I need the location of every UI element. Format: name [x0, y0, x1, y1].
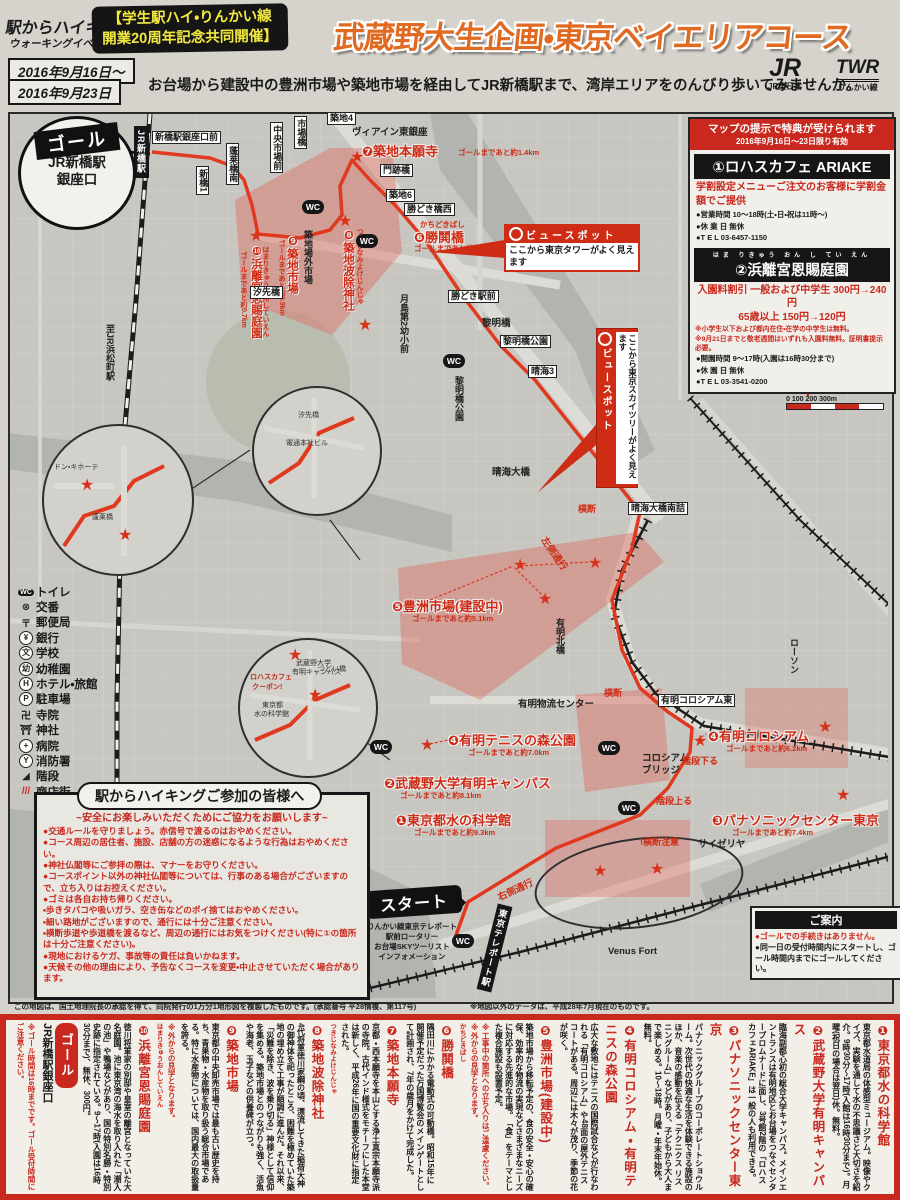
- course-subtitle: お台場から建設中の豊洲市場や築地市場を経由してJR新橋駅まで、湾岸エリアをのんび…: [148, 74, 860, 95]
- course-point-name: 東京都水の科学館: [875, 1039, 889, 1147]
- course-point-number: ❸: [726, 1023, 740, 1039]
- course-point-number: ❼: [384, 1023, 398, 1039]
- coupon-shop2-note1: ※小学生以下および都内在住・在学の中学生は無料。: [695, 326, 889, 335]
- legend-icon: +: [19, 739, 33, 753]
- goal-station-line2: 銀座口: [21, 172, 133, 189]
- legend-icon: H: [19, 677, 33, 691]
- safety-notice-panel: 駅からハイキングご参加の皆様へ ~安全にお楽しみいただくためにご協力をお願いしま…: [34, 792, 370, 1000]
- viewspot-eye-icon: [598, 332, 612, 346]
- course-point-furigana: かちどきばし: [456, 1023, 466, 1191]
- event-date-end: 2016年9月23日: [8, 79, 121, 105]
- map-legend: WCトイレ⊗交番〒郵便局¥銀行文学校幼幼稚園Hホテル・旅館P駐車場卍寺院⛩神社+…: [16, 584, 97, 799]
- course-point-item: ❾築地市場東京都の中央卸売市場では最も古い歴史を持ち、青果物・水産物を取り扱う総…: [166, 1023, 241, 1191]
- twr-logo-icon: TWR: [836, 58, 879, 82]
- scale-bar-graphic: [786, 403, 884, 410]
- safety-bullet: ●コースポイント以外の神社仏閣等については、行事のある場合がございますので、立ち…: [43, 871, 361, 894]
- legend-item: ⛩神社: [16, 723, 97, 738]
- safety-bullet: ●神社仏閣等にご参拝の際は、マナーをお守りください。: [43, 860, 361, 871]
- course-goal-entry: ゴール JR新橋駅銀座口 ※ゴール時間は16時までです。ゴール受付時間にご注意く…: [15, 1023, 78, 1191]
- legend-icon: ///: [22, 786, 30, 797]
- goal-callout: ゴール JR新橋駅 銀座口: [18, 116, 136, 230]
- guide-title: ご案内: [755, 911, 897, 929]
- coupon-header: マップの提示で特典が受けられます: [690, 121, 894, 136]
- coupon-shop2-offer2: 65歳以上 150円→120円: [696, 311, 888, 325]
- course-point-item: ❺豊洲市場(建設中)築地市場から移転予定の、食の安全・安心の確保、効率的な物流の…: [469, 1023, 555, 1191]
- jr-east-logo: JR JR東日本: [768, 56, 802, 92]
- inset-map-circle-ariake: [238, 638, 378, 778]
- course-point-item: ❶東京都水の科学館東京都水道局の体感型ミュージアム。映像やクイズ、実験を通して水…: [830, 1023, 892, 1191]
- legend-item: 文学校: [16, 646, 97, 661]
- legend-label: 神社: [36, 722, 59, 738]
- guide-line1: ●ゴールでの手続きはありません。: [755, 932, 897, 943]
- legend-label: 郵便局: [36, 614, 71, 630]
- course-point-description: パナソニックグループのコーポレートショウルーム。次世代の快適な生活を体験できる施…: [642, 1023, 703, 1191]
- safety-bullet: ●コース周辺の居住者、施設、店舗の方の迷惑になるような行為はおやめください。: [43, 837, 361, 860]
- course-point-number: ❿: [136, 1023, 150, 1039]
- guide-panel: ご案内 ●ゴールでの手続きはありません。 ●同一日の受付時間内にスタートし、ゴー…: [750, 906, 900, 980]
- coupon-shop1-hours: ●営業時間 10〜18時(土・日・祝は11時〜): [696, 210, 888, 221]
- coupon-shop1-title: ①ロハスカフェ ARIAKE: [694, 154, 890, 179]
- course-point-description: 東京都水道局の体感型ミュージアム。映像やクイズ、実験を通して水の不思議さと大切さ…: [830, 1023, 871, 1191]
- legend-item: P駐車場: [16, 692, 97, 707]
- course-point-description: 京都・西本願寺を本山とする浄土真宗本願寺派の寺院。古代インド様式をモチーフにした…: [340, 1023, 381, 1191]
- legend-icon: 文: [19, 646, 33, 660]
- safety-bullet: ●交通ルールを守りましょう。赤信号で渡るのはおやめください。: [43, 826, 361, 837]
- coupon-valid-dates: 2016年9月16日〜23日限り有効: [690, 136, 894, 147]
- legend-item: 卍寺院: [16, 707, 97, 722]
- coupon-shop2-hours: ●開園時間 9〜17時(入園は16時30分まで): [696, 354, 888, 365]
- legend-icon: 〒: [21, 619, 31, 630]
- course-point-number: ❻: [439, 1023, 453, 1039]
- map-copyright-note: この地図は、国土地理院長の承認を得て、同院発行の1万分1地形図を複製したものです…: [14, 1001, 416, 1012]
- legend-item: WCトイレ: [16, 584, 97, 599]
- legend-label: 幼稚園: [36, 661, 71, 677]
- viewspot-skytree: ビュースポット ここから東京スカイツリーがよく見えます: [596, 328, 638, 488]
- coop-badge: 【学生駅ハイ・りんかい線 開業20周年記念共同開催】: [92, 3, 288, 54]
- page-title: 武蔵野大生企画・東京ベイエリアコース: [332, 12, 854, 57]
- safety-bullet: ●現地におけるケガ、事故等の責任は負いかねます。: [43, 951, 361, 962]
- viewspot-title: ビュースポット: [600, 348, 611, 432]
- course-point-number: ❾: [224, 1023, 238, 1039]
- course-point-name: 築地波除神社: [310, 1039, 324, 1120]
- legend-item: Hホテル・旅館: [16, 676, 97, 691]
- coupon-shop2-furigana: はま りきゅう おん し てい えん: [694, 250, 890, 259]
- course-point-description: 築地市場から移転予定の、食の安全・安心の確保、効率的な物流の実現などさまざまなニ…: [493, 1023, 534, 1191]
- safety-subtitle: ~安全にお楽しみいただくためにご協力をお願いします~: [39, 809, 365, 824]
- coupon-shop2-tel: ●T E L 03-3541-0200: [696, 377, 888, 388]
- goal-note: ※ゴール時間は16時までです。ゴール受付時間にご注意ください。: [15, 1023, 37, 1191]
- goal-badge: ゴール: [55, 1023, 78, 1088]
- event-map-page: { "header": { "logo_line1": "駅からハイキング&",…: [0, 0, 900, 1200]
- legend-label: ホテル・旅館: [36, 676, 97, 692]
- coupon-shop2-closed: ●休 園 日 無休: [696, 366, 888, 377]
- legend-icon: ⊗: [22, 602, 30, 613]
- course-point-description: 東京都の中央卸売市場では最も古い歴史を持ち、青果物・水産物を取り扱う総合市場であ…: [179, 1023, 220, 1191]
- scale-bar: 0 100 200 300m: [786, 396, 884, 410]
- goal-description: JR新橋駅銀座口: [39, 1023, 55, 1191]
- map-data-note: ※地図以外のデータは、平成28年7月現在のものです。: [470, 1001, 654, 1012]
- legend-icon: 卍: [21, 711, 31, 722]
- legend-label: 階段: [36, 768, 59, 784]
- course-point-item: つきじなみよけじんじゃ❽築地波除神社4代将軍徳川家綱の頃、漂流してきた稲荷大神の…: [244, 1023, 336, 1191]
- legend-label: 交番: [36, 599, 59, 615]
- course-point-item: ❸パナソニックセンター東京パナソニックグループのコーポレートショウルーム。次世代…: [642, 1023, 743, 1191]
- coupon-shop1-offer: 学割設定メニューご注文のお客様に学割金額でご提供: [696, 181, 888, 208]
- coupon-shop2-title: ②浜離宮恩賜庭園: [694, 259, 890, 280]
- legend-icon: P: [19, 692, 33, 706]
- course-point-description: 隅田川にかかる電動式の可動橋。昭和15年に開催予定だった万国博覧会のメインゲート…: [404, 1023, 435, 1191]
- course-point-number: ❶: [875, 1023, 889, 1039]
- viewspot-title: ビュースポット: [526, 231, 617, 242]
- coop-badge-line2: 開業20周年記念共同開催】: [102, 27, 278, 50]
- coupon-shop2-note2: ※9月21日までと敬老週間はいずれも入園料無料。証明書提示必要。: [695, 336, 889, 354]
- course-point-name: パナソニックセンター東京: [707, 1023, 740, 1188]
- coupon-panel: マップの提示で特典が受けられます 2016年9月16日〜23日限り有効 ①ロハス…: [688, 117, 896, 394]
- legend-item: ◢階段: [16, 769, 97, 784]
- legend-label: 銀行: [36, 630, 59, 646]
- legend-icon: ⛩: [20, 725, 33, 736]
- inset-map-circle-shiodome: [252, 386, 382, 516]
- course-point-description: 広大な敷地にはテニスの国際試合などが行なわれる「有明コロシアム」や48面の屋外テ…: [558, 1023, 599, 1191]
- legend-icon: ¥: [19, 631, 33, 645]
- course-point-name: 豊洲市場(建設中): [538, 1039, 552, 1144]
- legend-label: 寺院: [36, 707, 59, 723]
- safety-title: 駅からハイキングご参加の皆様へ: [77, 782, 322, 810]
- inset-map-circle-shimbashi: [42, 424, 194, 576]
- legend-label: 消防署: [36, 753, 71, 769]
- course-point-item: かちどきばし❻勝鬨橋隅田川にかかる電動式の可動橋。昭和15年に開催予定だった万国…: [404, 1023, 466, 1191]
- coupon-shop1-tel: ●T E L 03-6457-1150: [696, 233, 888, 244]
- legend-item: Y消防署: [16, 753, 97, 768]
- course-point-name: 築地市場: [224, 1039, 238, 1093]
- course-point-item: ❼築地本願寺京都・西本願寺を本山とする浄土真宗本願寺派の寺院。古代インド様式をモ…: [340, 1023, 402, 1191]
- safety-bullet: ・横断歩道や歩道橋を渡るなど、周辺の通行にはお気をつけください(特に①の箇所は十…: [43, 928, 361, 951]
- course-point-name: 武蔵野大学有明キャンパス: [791, 1023, 824, 1188]
- course-point-description: 4代将軍徳川家綱の頃、漂流してきた稲荷大神の御神体を祀ったところ、困難を極めてい…: [244, 1023, 305, 1191]
- course-point-name: 築地本願寺: [384, 1039, 398, 1107]
- legend-label: 駐車場: [36, 691, 71, 707]
- viewspot-body: ここから東京スカイツリーがよく見えます: [616, 332, 638, 484]
- legend-item: 幼幼稚園: [16, 661, 97, 676]
- legend-icon: WC: [18, 589, 34, 596]
- course-points-flow: ●コースのポイント 歩行時間 約2時間20分 歩行距離 約9.5km ※地図中の…: [6, 1020, 894, 1194]
- jr-logo-icon: JR: [768, 56, 802, 81]
- course-point-description: 臨海副都心初の総合大学キャンパス。メインエントランスは有明地区とお台場をつなぐセ…: [746, 1023, 787, 1191]
- legend-label: 病院: [36, 738, 59, 754]
- twr-logo-label: りんかい線: [836, 82, 879, 93]
- course-point-item: ❷武蔵野大学有明キャンパス臨海副都心初の総合大学キャンパス。メインエントランスは…: [746, 1023, 827, 1191]
- course-point-note: ※外からの見学となります。: [166, 1023, 177, 1191]
- twr-rinkai-logo: TWR りんかい線: [836, 58, 879, 93]
- legend-icon: 幼: [19, 662, 33, 676]
- legend-label: 学校: [36, 645, 59, 661]
- course-point-number: ❷: [810, 1023, 824, 1039]
- guide-line2: ●同一日の受付時間内にスタートし、ゴール時間内までにゴールしてください。: [755, 943, 897, 975]
- safety-bullet: ●天候その他の理由により、予告なくコースを変更・中止させていただく場合があります…: [43, 962, 361, 985]
- course-point-furigana: つきじなみよけじんじゃ: [327, 1023, 337, 1191]
- viewspot-body: ここから東京タワーがよく見えます: [506, 243, 638, 270]
- legend-item: ⊗交番: [16, 599, 97, 614]
- coop-badge-line1: 【学生駅ハイ・りんかい線: [102, 7, 278, 30]
- jr-logo-label: JR東日本: [768, 81, 802, 92]
- course-point-number: ❹: [622, 1023, 636, 1039]
- course-point-number: ❽: [310, 1023, 324, 1039]
- legend-item: +病院: [16, 738, 97, 753]
- legend-icon: Y: [19, 754, 33, 768]
- course-point-name: 有明コロシアム・有明テニスの森公園: [603, 1023, 636, 1188]
- course-point-name: 浜離宮恩賜庭園: [136, 1039, 150, 1134]
- viewspot-eye-icon: [509, 227, 523, 241]
- course-point-item: はまりきゅうおんしていえん❿浜離宮恩賜庭園徳川将軍家の別邸や皇室の離宮となってい…: [81, 1023, 163, 1191]
- course-point-furigana: はまりきゅうおんしていえん: [153, 1023, 163, 1191]
- goal-badge: ゴール: [34, 122, 121, 160]
- course-point-number: ❺: [538, 1023, 552, 1039]
- safety-bullet: ●ゴミは各自お持ち帰りください。: [43, 894, 361, 905]
- legend-icon: ◢: [22, 771, 30, 782]
- viewspot-tokyo-tower: ビュースポット ここから東京タワーがよく見えます: [504, 224, 640, 272]
- course-points-band: ●コースのポイント 歩行時間 約2時間20分 歩行距離 約9.5km ※地図中の…: [0, 1014, 900, 1200]
- course-point-description: 徳川将軍家の別邸や皇室の離宮となっていた大名庭園。池に東京湾の海水を取り入れた「…: [81, 1023, 132, 1191]
- legend-item: 〒郵便局: [16, 615, 97, 630]
- course-point-name: 勝鬨橋: [439, 1039, 453, 1080]
- legend-item: ¥銀行: [16, 630, 97, 645]
- coupon-shop1-closed: ●休 業 日 無休: [696, 222, 888, 233]
- coupon-shop2-offer1: 入園料割引 一般および中学生 300円→240円: [696, 284, 888, 311]
- course-point-note: ※工事中の箇所への立ち入りはご遠慮ください。※外からの見学となります。: [469, 1023, 491, 1191]
- legend-label: トイレ: [36, 584, 71, 600]
- scale-ticks: 0 100 200 300m: [786, 396, 884, 403]
- safety-bullet: ・細い路地がございますので、通行には十分ご注意ください。: [43, 917, 361, 928]
- course-point-item: ❹有明コロシアム・有明テニスの森公園広大な敷地にはテニスの国際試合などが行なわれ…: [558, 1023, 639, 1191]
- safety-bullet: ・歩きタバコや吸いガラ、空き缶などのポイ捨てはおやめください。: [43, 905, 361, 916]
